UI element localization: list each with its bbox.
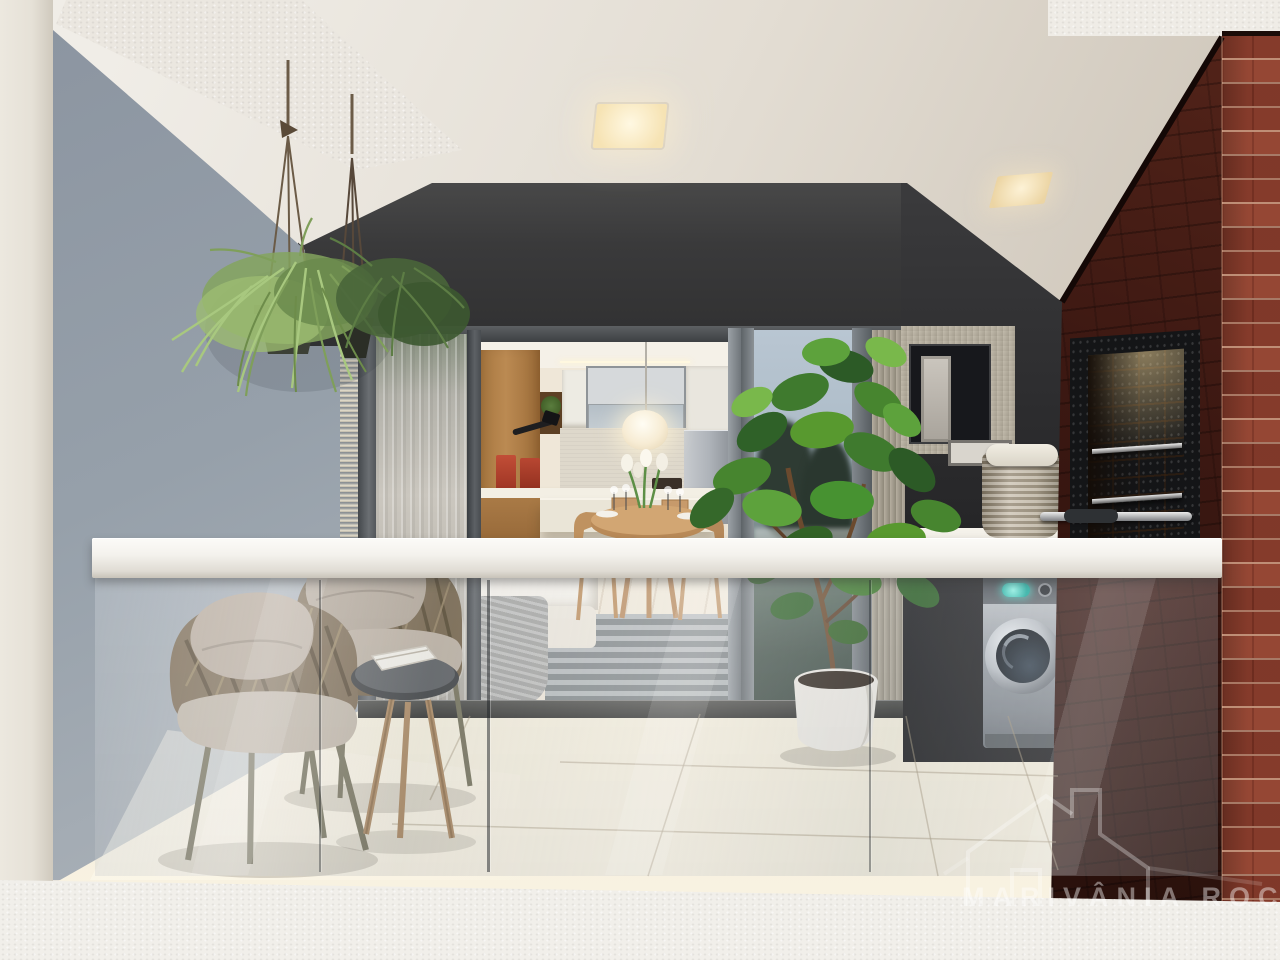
glass-seam [319, 580, 321, 872]
pendant-cord [645, 342, 647, 412]
kitchen-island [540, 498, 718, 532]
glass-seam [487, 580, 490, 872]
grill-handle-grip [1064, 509, 1118, 523]
left-facade-strip [0, 0, 53, 960]
balcony-render: MARIVÂNIA ROCHA [0, 0, 1280, 960]
interior-door-through-window [921, 356, 951, 442]
towel-on-basket [986, 444, 1058, 466]
glass-streaks [95, 577, 1218, 875]
pendant-lamp [622, 410, 668, 450]
led-strip [560, 361, 690, 363]
brick-cap-edge [1222, 31, 1280, 36]
coffee-tray [652, 478, 682, 489]
upper-cabinet-right [684, 366, 730, 432]
red-appliance [496, 455, 516, 490]
recessed-light [593, 104, 668, 148]
watermark-text: MARIVÂNIA ROCHA [962, 882, 1280, 916]
red-appliance [520, 458, 540, 490]
glass-seam [869, 580, 871, 872]
handrail [92, 538, 1222, 578]
kitchen-counter [478, 488, 730, 498]
brick-pillar-front [1222, 34, 1280, 914]
recessed-light [989, 172, 1053, 209]
